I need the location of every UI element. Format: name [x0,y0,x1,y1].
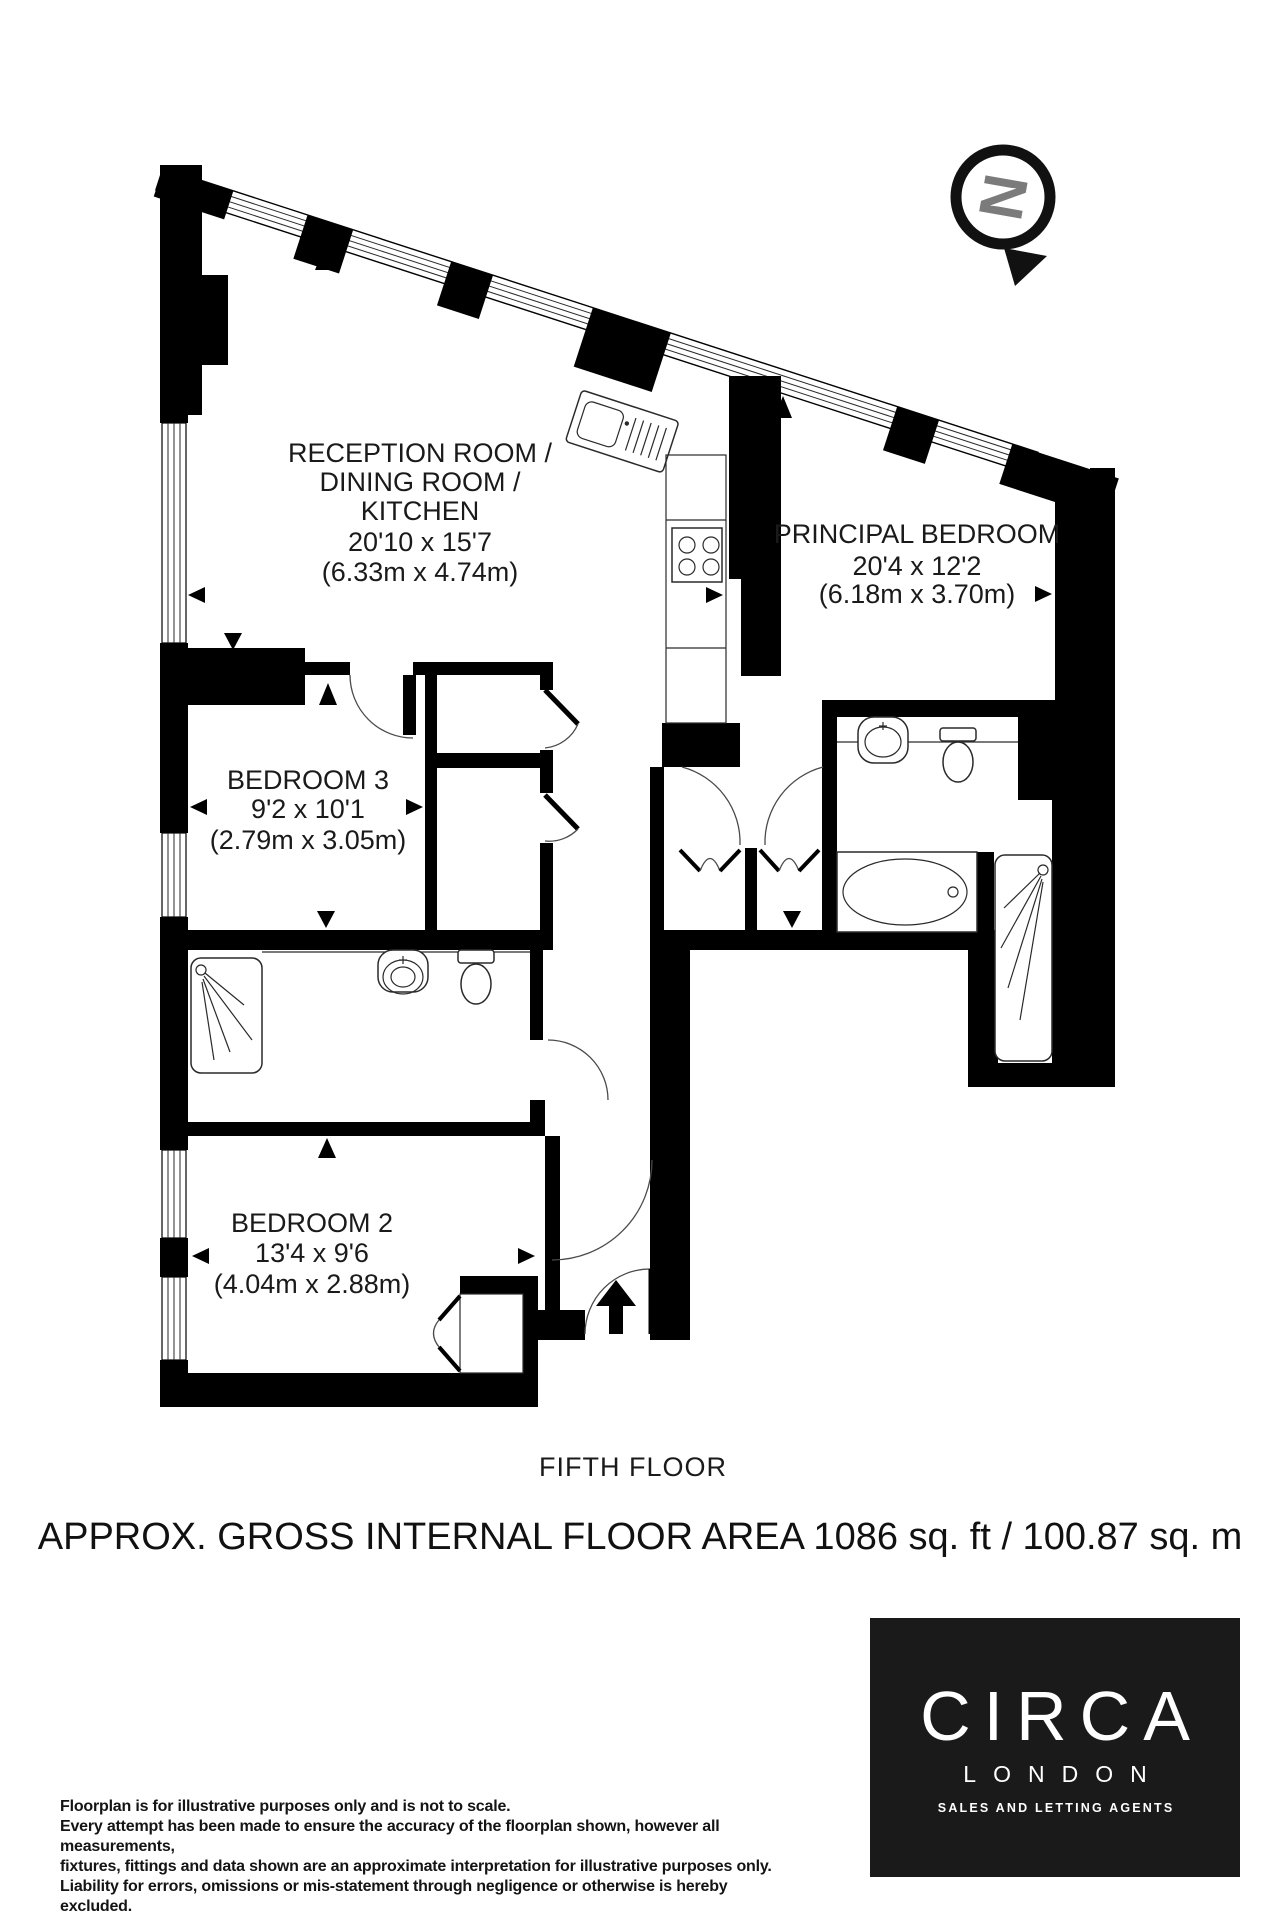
svg-text:DINING ROOM /: DINING ROOM / [320,467,521,497]
kitchen-counter [666,455,726,723]
disclaimer-line: Liability for errors, omissions or mis-s… [60,1877,800,1917]
dimension-arrow [317,911,335,928]
dimension-arrow [318,1138,336,1158]
window [162,833,186,917]
room-label-bedroom-2: BEDROOM 2 13'4 x 9'6 (4.04m x 2.88m) [214,1208,411,1299]
dimension-arrow [224,633,242,650]
compass-icon: N [956,150,1050,286]
dimension-arrow [192,1248,209,1264]
svg-text:PRINCIPAL BEDROOM: PRINCIPAL BEDROOM [774,519,1061,549]
compass-pointer-icon [1004,248,1047,286]
room-label-principal-bedroom: PRINCIPAL BEDROOM 20'4 x 12'2 (6.18m x 3… [774,519,1061,609]
disclaimer-line: Every attempt has been made to ensure th… [60,1817,800,1857]
dimension-arrow [518,1248,535,1264]
svg-text:(4.04m x 2.88m): (4.04m x 2.88m) [214,1269,411,1299]
door-arc [765,767,823,845]
wardrobe [434,1294,524,1373]
windows [162,423,186,1360]
window [162,423,186,643]
dimension-arrow [319,683,337,705]
door-arc [682,767,740,845]
disclaimer: Floorplan is for illustrative purposes o… [60,1797,800,1917]
diagonal-window-wall [144,168,1119,538]
svg-text:(6.18m x 3.70m): (6.18m x 3.70m) [819,579,1016,609]
svg-text:KITCHEN: KITCHEN [361,496,480,526]
room-label-bedroom-3: BEDROOM 3 9'2 x 10'1 (2.79m x 3.05m) [210,765,407,855]
disclaimer-line: fixtures, fittings and data shown are an… [60,1857,800,1877]
dimension-arrow [783,911,801,928]
svg-text:BEDROOM 2: BEDROOM 2 [231,1208,393,1238]
floorplan-drawing: N [0,0,1280,1460]
closet-door-leaf [545,795,578,829]
kitchen-sink-icon [565,390,679,473]
svg-text:(2.79m x 3.05m): (2.79m x 3.05m) [210,825,407,855]
bath-icon [837,852,977,932]
logo-brand-text: CIRCA [920,1681,1203,1751]
svg-text:20'10 x 15'7: 20'10 x 15'7 [348,527,492,557]
doors [350,675,823,1373]
floorplan-page: { "plan": { "compass": { "letter": "N" }… [0,0,1280,1920]
window [162,1150,186,1238]
hob-icon [672,528,722,582]
shower-icon [995,855,1052,1061]
dimension-arrow [406,799,423,815]
dimension-arrow [1035,586,1052,602]
sink-icon [378,950,428,994]
compass-north-letter: N [965,169,1041,225]
logo-tagline-text: SALES AND LETTING AGENTS [938,1801,1175,1815]
dimension-arrow [188,587,205,603]
svg-text:RECEPTION ROOM /: RECEPTION ROOM / [288,438,553,468]
disclaimer-line: Floorplan is for illustrative purposes o… [60,1797,800,1817]
shower-icon [191,958,262,1073]
toilet-icon [940,728,976,782]
logo-city-text: LONDON [963,1761,1163,1788]
window [162,1277,186,1360]
circa-london-logo: CIRCA LONDON SALES AND LETTING AGENTS [870,1618,1240,1877]
sink-icon [858,717,908,763]
floor-label: FIFTH FLOOR [0,1452,1266,1483]
toilet-icon [458,950,494,1004]
entrance-arrow-icon [596,1280,636,1334]
svg-text:20'4 x 12'2: 20'4 x 12'2 [853,551,982,581]
door-arc [552,1160,652,1260]
gross-area-summary: APPROX. GROSS INTERNAL FLOOR AREA 1086 s… [0,1516,1280,1559]
svg-text:(6.33m x 4.74m): (6.33m x 4.74m) [322,557,519,587]
svg-text:13'4 x 9'6: 13'4 x 9'6 [255,1238,369,1268]
door-arc [548,1040,608,1100]
room-label-reception: RECEPTION ROOM / DINING ROOM / KITCHEN 2… [288,438,553,587]
dimension-arrow [190,799,207,815]
closet-door-leaf [545,690,578,724]
svg-text:9'2 x 10'1: 9'2 x 10'1 [251,794,365,824]
shared-bathroom [191,950,530,1073]
dimension-arrow [706,587,723,603]
svg-text:BEDROOM 3: BEDROOM 3 [227,765,389,795]
